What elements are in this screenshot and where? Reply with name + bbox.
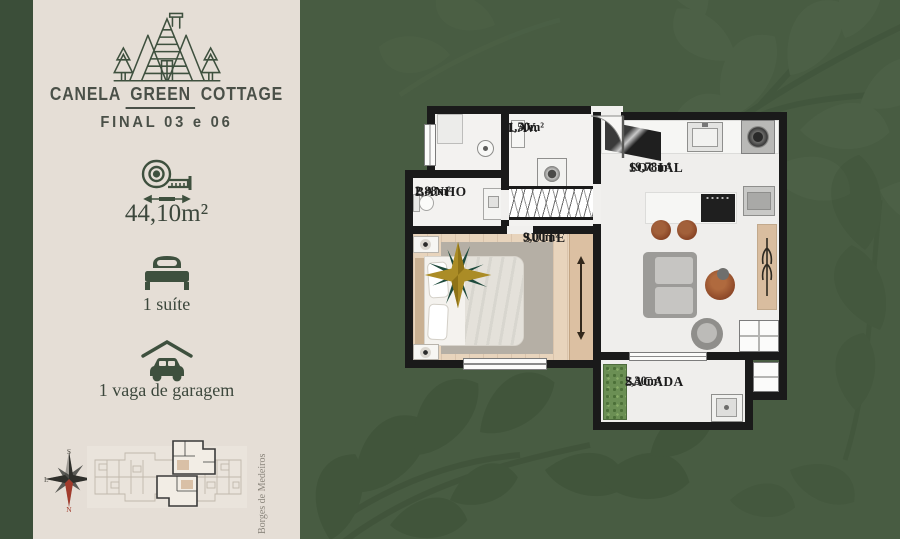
neighbor-window (753, 362, 779, 392)
sidebar-edge-strip (0, 0, 33, 539)
kitchen-faucet (702, 123, 708, 127)
gold-star-ornament (421, 238, 495, 312)
lav-washer-drum (544, 166, 560, 182)
bar-stool-2 (677, 220, 697, 240)
sacada-sink-drain (724, 405, 729, 410)
social-corner-window (739, 320, 779, 352)
tape-measure-wrap (33, 158, 300, 206)
feature-area-label: 44,10m² (33, 200, 300, 228)
car-garage-wrap (33, 338, 300, 384)
wall (405, 226, 601, 234)
wardrobe-sliding-arrow (576, 256, 586, 340)
sacada-sliding-door (629, 352, 707, 361)
kitchen-oven-door (747, 192, 771, 210)
keyplan-thumbnail (85, 436, 252, 516)
wall (621, 112, 787, 120)
street-label: Borges de Medeiros (257, 424, 271, 534)
kitchen-sink-basin (692, 128, 718, 147)
bath-sink-drain (483, 146, 488, 151)
brand-subtitle: FINAL 03 e 06 (44, 114, 290, 132)
wall (503, 106, 591, 114)
wall (405, 226, 413, 368)
feature-garage-label: 1 vaga de garagem (33, 380, 300, 401)
kitchen-stove-burner (747, 126, 769, 148)
social-area: 19,78m² (629, 160, 671, 175)
brand-word-canela: CANELA (50, 84, 121, 104)
wall (593, 422, 753, 430)
tape-measure-icon (135, 158, 199, 206)
lav-area: 1,50m² (508, 120, 544, 135)
brand-word-cottage: COTTAGE (201, 84, 283, 104)
compass-top-letter: S (67, 447, 71, 456)
island-cooktop-dots (705, 196, 731, 200)
brand-word-green: GREEN (126, 84, 196, 109)
sideboard-plant (760, 234, 774, 300)
hall-closet-hangers (509, 186, 593, 220)
compass-bottom-letter: N (66, 505, 72, 514)
feature-suite-label: 1 suíte (33, 294, 300, 315)
sofa-cushion-1 (655, 257, 693, 284)
compass-left-letter: L (44, 475, 49, 484)
suite-window (463, 358, 547, 370)
wall (707, 352, 787, 360)
wall (593, 352, 629, 360)
wall (593, 360, 601, 430)
cabin-trees-logo-icon (101, 8, 233, 88)
brochure-canvas: CANELA GREEN COTTAGE FINAL 03 e 06 (0, 0, 900, 539)
wall (405, 170, 413, 234)
wall (427, 106, 507, 114)
bath-window (424, 124, 436, 166)
hall-opening (593, 184, 601, 224)
sofa-cushion-2 (655, 287, 693, 314)
sacada-area: 2,30m² (625, 374, 661, 389)
lamp-bottom (420, 347, 431, 358)
coffee-table-vase (717, 268, 729, 280)
armchair-seat (697, 323, 717, 343)
bed-wrap (33, 252, 300, 294)
banho-area: 2,88m² (415, 184, 451, 199)
floorplan: LAV. 1,50m² BANHO 2,88m² SOCIAL 19,78m² … (405, 106, 790, 436)
banho-vanity-sink (488, 196, 499, 208)
wall (405, 170, 505, 178)
brand-title: CANELA GREEN COTTAGE (49, 84, 284, 105)
logo-wrap (33, 8, 300, 88)
sacada-planter (603, 364, 627, 420)
entry-door-arc (589, 114, 627, 160)
car-garage-icon (137, 338, 197, 384)
bed-icon (139, 252, 195, 294)
wall (753, 392, 787, 400)
wall (745, 360, 753, 430)
bar-stool-1 (651, 220, 671, 240)
suite-area: 9,00m² (523, 230, 559, 245)
bath-shower (437, 114, 463, 144)
sidebar-panel: CANELA GREEN COTTAGE FINAL 03 e 06 (33, 0, 300, 539)
banho-door-opening (501, 190, 509, 220)
